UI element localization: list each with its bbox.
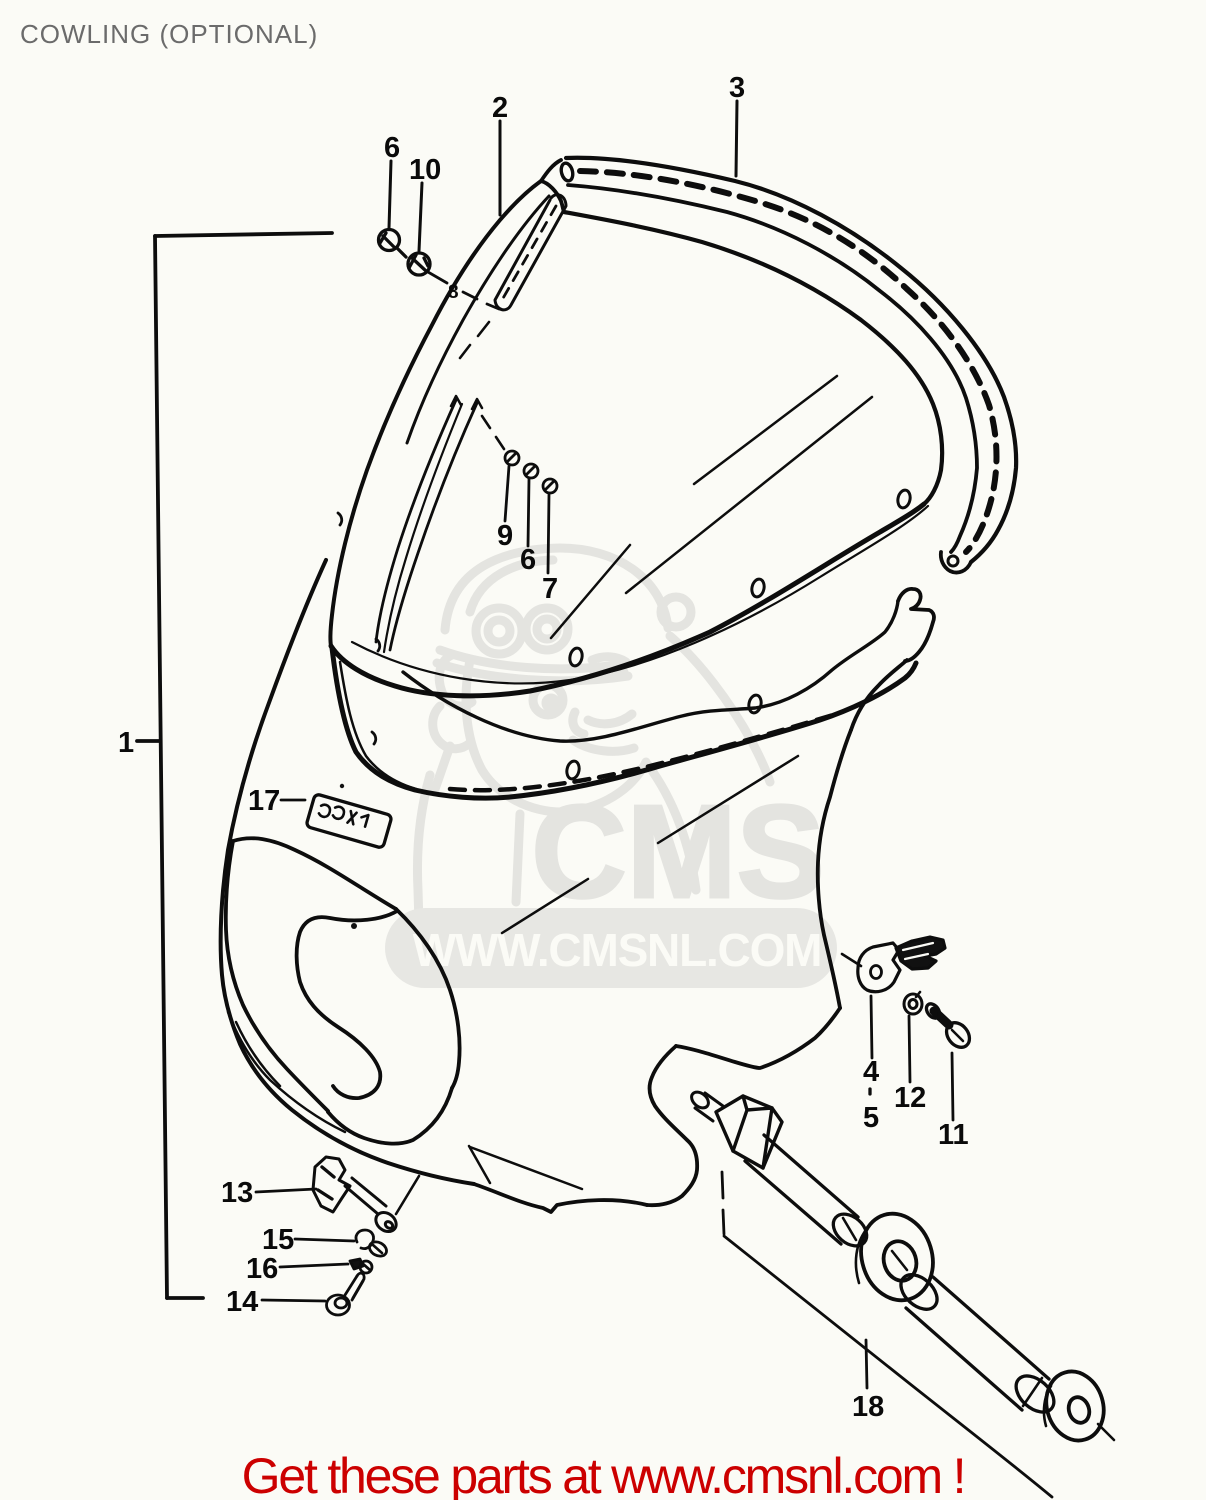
svg-text:WWW.CMSNL.COM: WWW.CMSNL.COM xyxy=(413,924,822,976)
svg-text:3: 3 xyxy=(729,72,745,104)
svg-text:5: 5 xyxy=(863,1102,879,1134)
svg-text:18: 18 xyxy=(852,1391,884,1423)
svg-text:11: 11 xyxy=(938,1119,969,1151)
svg-text:12: 12 xyxy=(894,1082,926,1114)
svg-text:16: 16 xyxy=(246,1253,278,1285)
svg-text:4: 4 xyxy=(863,1056,879,1088)
svg-text:2: 2 xyxy=(492,92,508,124)
svg-text:9: 9 xyxy=(497,520,513,552)
svg-text:17: 17 xyxy=(248,785,280,817)
svg-text:10: 10 xyxy=(409,154,441,186)
svg-text:CMS: CMS xyxy=(531,778,824,925)
svg-text:7: 7 xyxy=(542,573,558,605)
svg-text:1: 1 xyxy=(118,727,134,759)
svg-text:6: 6 xyxy=(520,544,536,576)
svg-text:COWLING (OPTIONAL): COWLING (OPTIONAL) xyxy=(20,19,318,49)
svg-text:14: 14 xyxy=(226,1286,258,1318)
svg-text:Get these parts at www.cmsnl.c: Get these parts at www.cmsnl.com ! xyxy=(242,1448,965,1500)
svg-text:13: 13 xyxy=(221,1177,253,1209)
svg-text:6: 6 xyxy=(384,132,400,164)
svg-text:8: 8 xyxy=(448,282,459,303)
svg-text:15: 15 xyxy=(262,1224,294,1256)
